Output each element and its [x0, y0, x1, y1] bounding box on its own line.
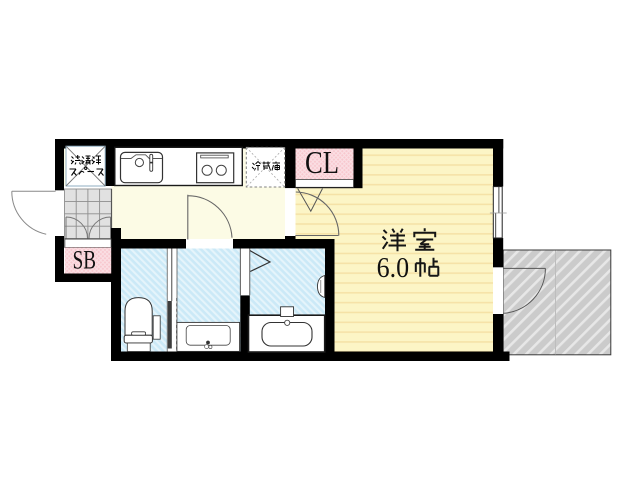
svg-text:SB: SB	[73, 246, 96, 275]
svg-text:CL: CL	[305, 144, 339, 180]
svg-text:6.0: 6.0	[377, 253, 410, 284]
